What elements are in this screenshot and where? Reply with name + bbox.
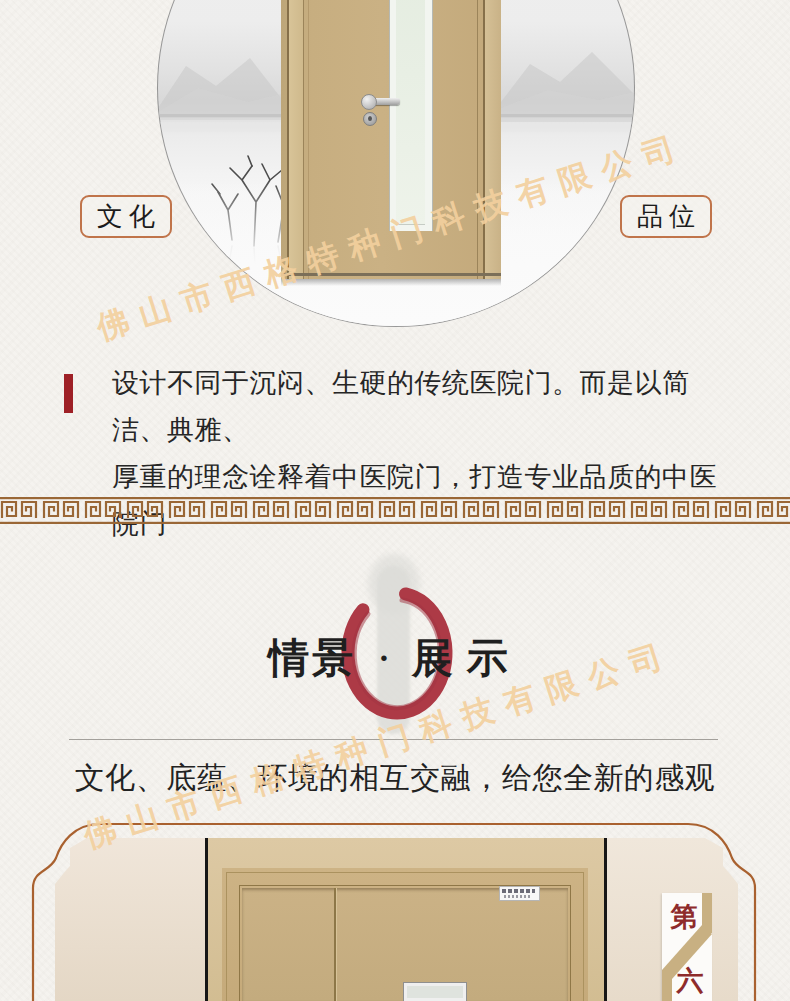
label-text-row (504, 895, 530, 898)
door-groove-line (303, 0, 304, 279)
meander-divider-band (0, 497, 790, 524)
door-bottom-rail (281, 273, 501, 276)
door-vision-window (404, 983, 466, 1001)
section-title-dot: · (378, 641, 389, 675)
page-root: 文化 品位 设计不同于沉闷、生硬的传统医院门。而是以简洁、典雅、 厚重的理念诠释… (0, 0, 790, 1001)
door-jamb-left (289, 0, 303, 279)
door-glass-panel (396, 0, 425, 225)
hero-circle-image (157, 0, 635, 327)
door-handle-rose (361, 94, 377, 110)
door-jamb-right (485, 0, 501, 279)
door-shadow (281, 279, 501, 286)
photo-door-frame (222, 868, 588, 1001)
taste-badge: 品位 (620, 195, 712, 238)
section-subtitle: 文化、底蕴、环境的相互交融，给您全新的感观 (0, 758, 790, 799)
door-glass-frame (389, 0, 433, 231)
certification-label (499, 886, 540, 901)
hero-door-image (281, 0, 501, 279)
chapter-char-top: 第 (662, 899, 712, 935)
section-title-right: 展示 (412, 631, 522, 686)
label-text-row (502, 889, 535, 893)
door-keyhole (363, 112, 377, 126)
photo-wall-left (55, 838, 205, 1001)
gallery-photo: 第 六 (55, 838, 738, 1001)
divider-line (69, 739, 718, 740)
door-leaf-split-highlight (336, 888, 337, 1001)
door-groove-line (308, 0, 309, 279)
door-groove-line (477, 0, 478, 279)
intro-line-1: 设计不同于沉闷、生硬的传统医院门。而是以简洁、典雅、 (112, 360, 737, 454)
culture-badge: 文化 (80, 195, 172, 238)
section-title: 情景 · 展示 (0, 628, 790, 688)
chapter-char-bottom: 六 (662, 963, 712, 999)
chapter-ribbon: 第 六 (662, 893, 712, 1001)
section-title-left: 情景 (268, 631, 356, 686)
accent-bar (64, 374, 73, 413)
